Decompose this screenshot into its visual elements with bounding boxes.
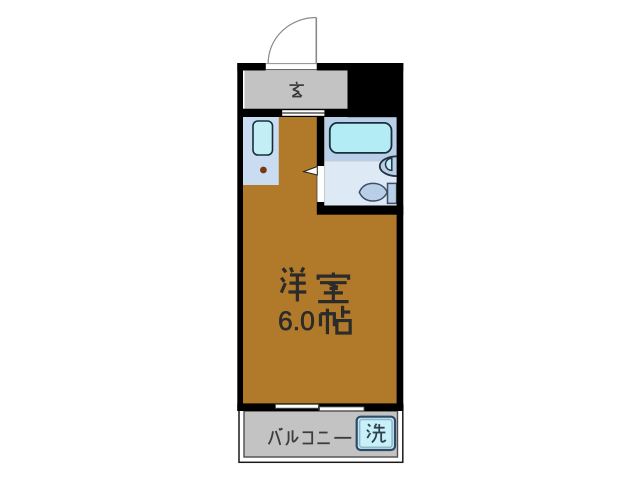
svg-text:6.0: 6.0 bbox=[278, 306, 315, 336]
